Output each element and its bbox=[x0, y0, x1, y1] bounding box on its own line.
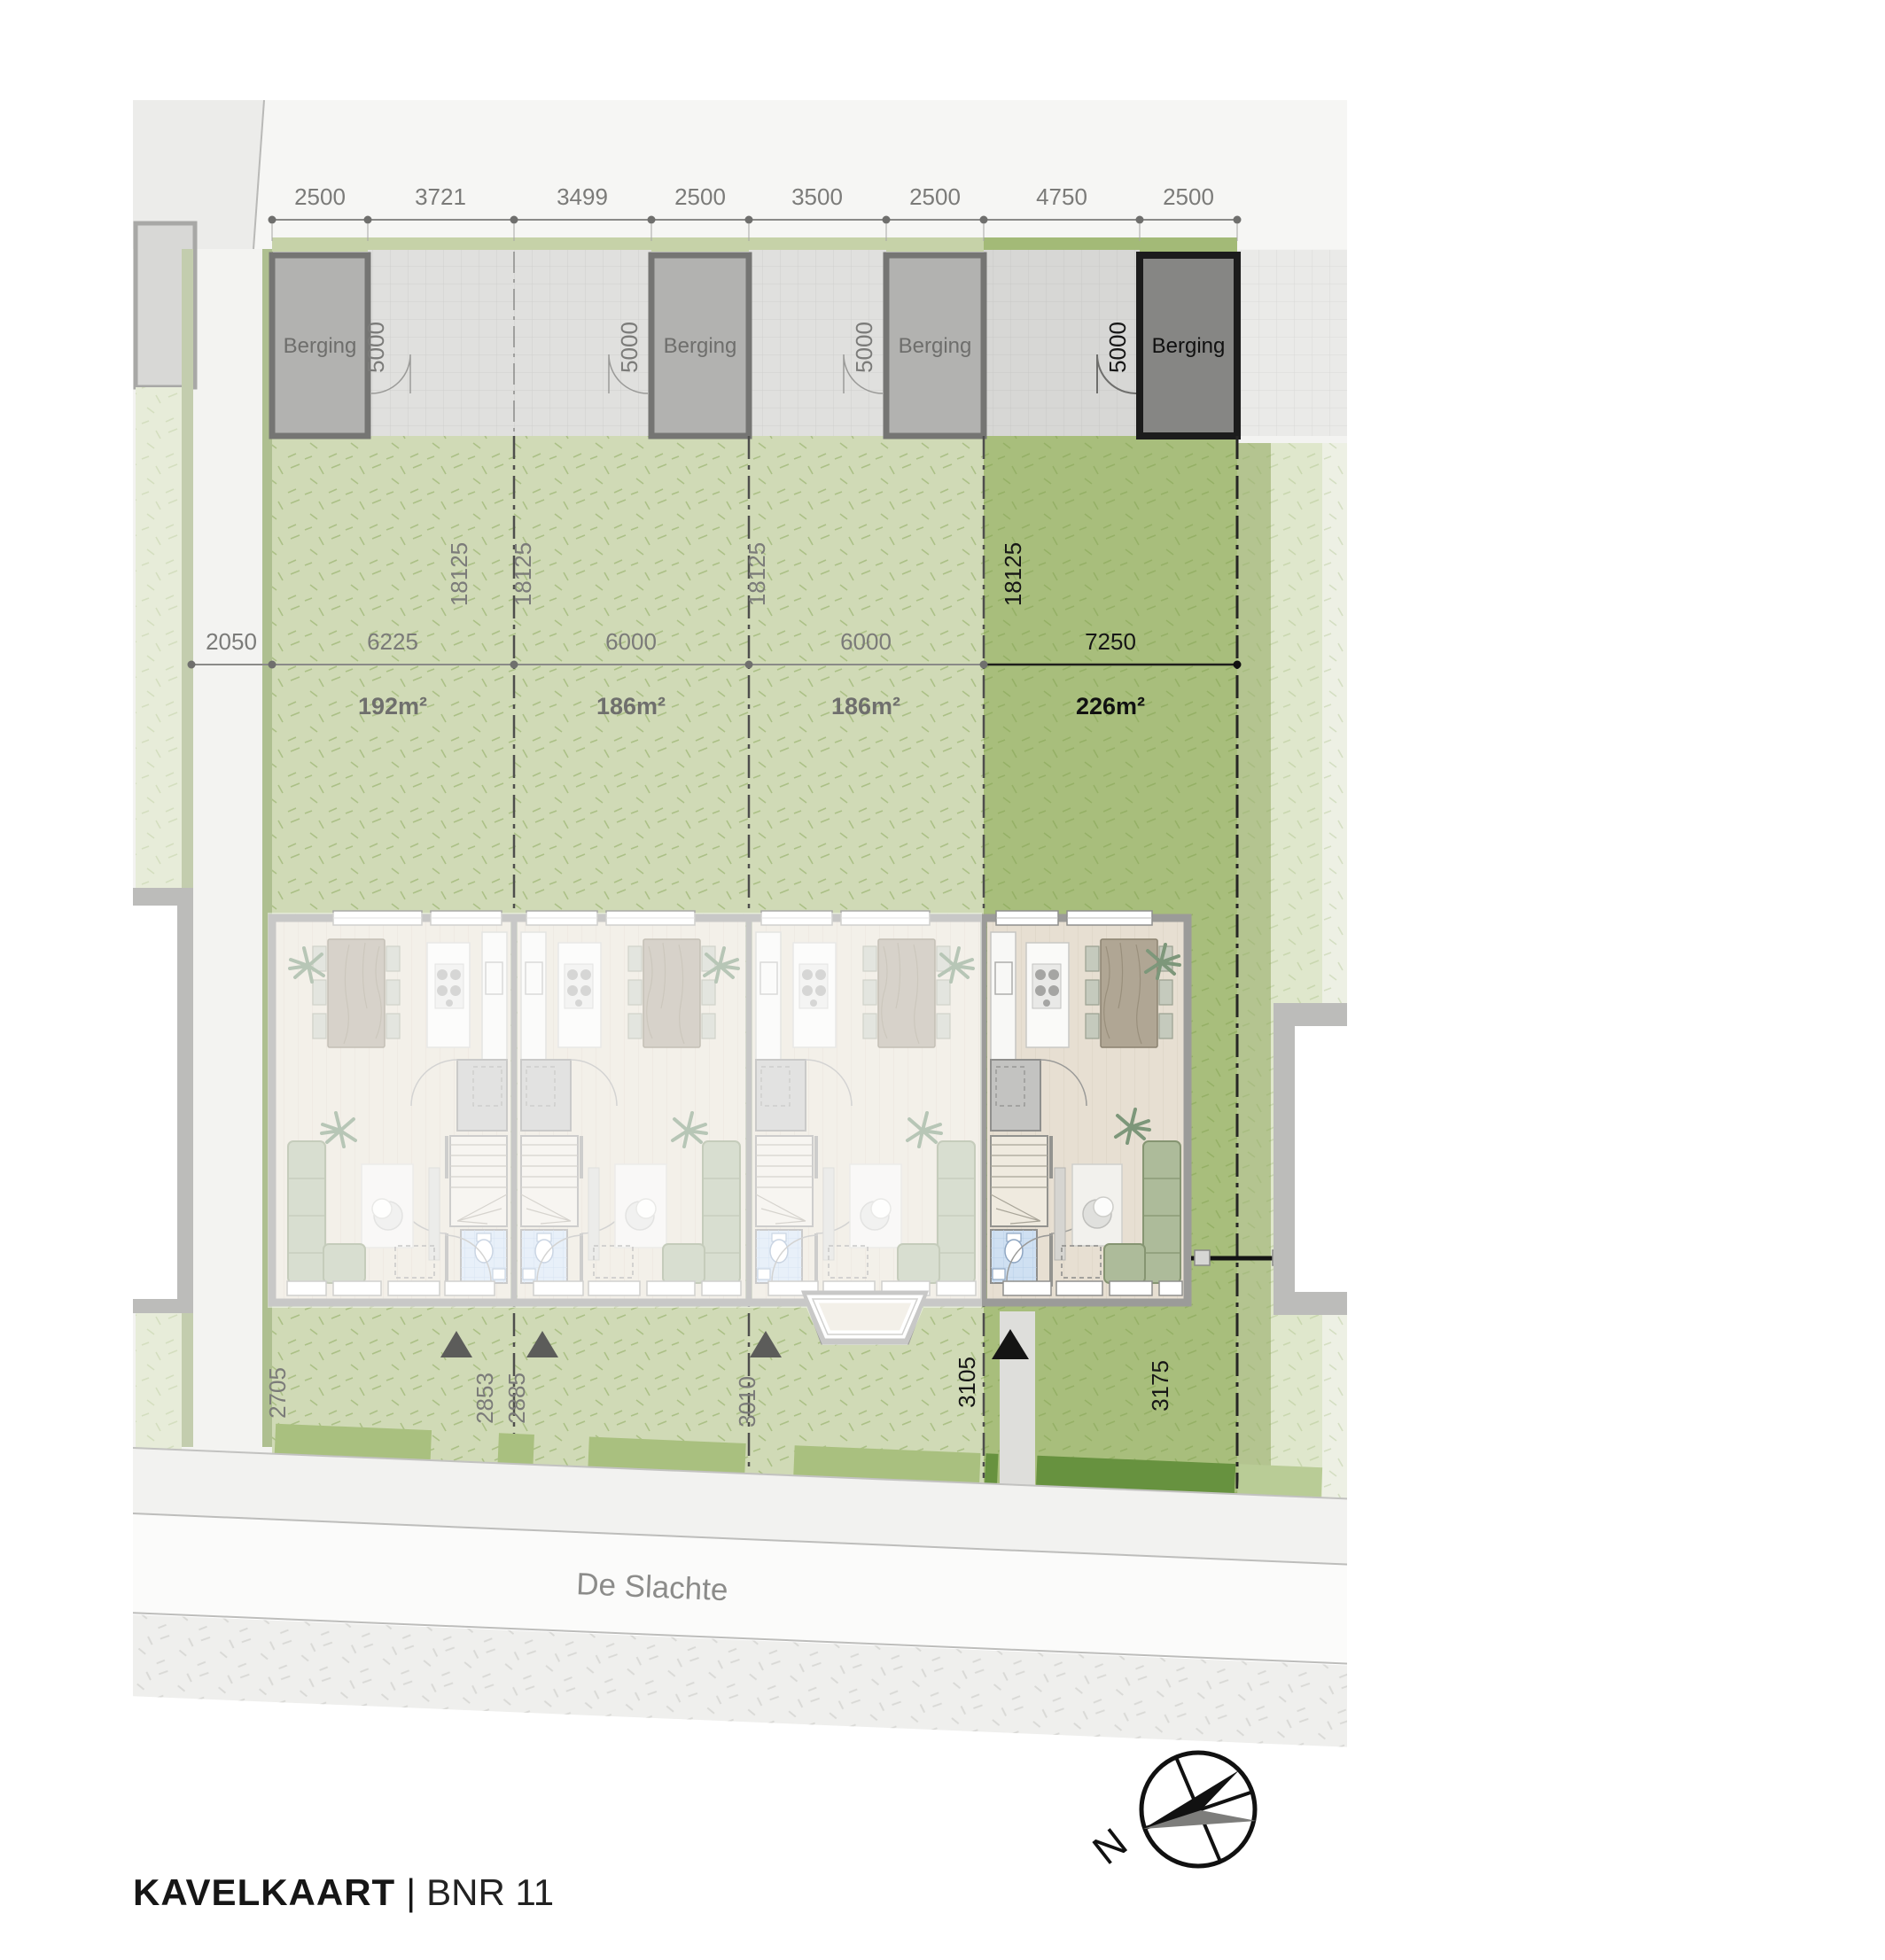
front-dim-5: 3175 bbox=[1147, 1360, 1173, 1412]
neighbor-building-right bbox=[1274, 1003, 1347, 1315]
plot3-depth: 18125 bbox=[744, 542, 770, 606]
plot3-area: 186m² bbox=[831, 693, 900, 719]
berging-depth-1: 5000 bbox=[362, 322, 389, 373]
path-width-label: 2050 bbox=[206, 628, 257, 655]
berging-depth-4: 5000 bbox=[1104, 322, 1131, 373]
plot3-width: 6000 bbox=[840, 628, 892, 655]
front-dim-0: 2705 bbox=[264, 1367, 291, 1419]
plot1-width: 6225 bbox=[367, 628, 418, 655]
dim-top-0: 2500 bbox=[294, 183, 346, 210]
plot2-width: 6000 bbox=[605, 628, 657, 655]
berging-label-1: Berging bbox=[284, 334, 357, 358]
dim-top-4: 3500 bbox=[791, 183, 843, 210]
berging-label-2: Berging bbox=[664, 334, 737, 358]
plot1-area: 192m² bbox=[358, 693, 427, 719]
dim-top-7: 2500 bbox=[1163, 183, 1214, 210]
house-row bbox=[268, 911, 1188, 1345]
neighbor-building-left bbox=[133, 888, 193, 1313]
plot2-area: 186m² bbox=[596, 693, 666, 719]
plot4-width: 7250 bbox=[1085, 628, 1136, 655]
plot4-area: 226m² bbox=[1076, 693, 1145, 719]
front-dim-4: 3105 bbox=[954, 1357, 980, 1408]
plot1-depth: 18125 bbox=[446, 542, 472, 606]
plot-number: BNR 11 bbox=[426, 1871, 554, 1914]
plot4-depth: 18125 bbox=[1000, 542, 1026, 606]
berging-label-4: Berging bbox=[1152, 334, 1226, 358]
berging-depth-2: 5000 bbox=[616, 322, 643, 373]
kavelkaart-page: Berging Berging Berging Berging 5000 500… bbox=[0, 0, 1885, 1960]
dim-top-2: 3499 bbox=[557, 183, 608, 210]
site-plan: Berging Berging Berging Berging 5000 500… bbox=[0, 0, 1885, 1960]
dim-top-3: 2500 bbox=[674, 183, 726, 210]
title-separator: | bbox=[406, 1871, 416, 1914]
north-label: N bbox=[1084, 1819, 1135, 1873]
berging-depth-3: 5000 bbox=[851, 322, 877, 373]
title-block: KAVELKAART | BNR 11 bbox=[133, 1871, 554, 1914]
page-title: KAVELKAART bbox=[133, 1871, 395, 1914]
dim-top-5: 2500 bbox=[909, 183, 961, 210]
front-dim-1: 2853 bbox=[471, 1373, 498, 1424]
front-dim-3: 3010 bbox=[734, 1376, 760, 1427]
plot2-depth: 18125 bbox=[510, 542, 536, 606]
dim-top-6: 4750 bbox=[1036, 183, 1087, 210]
berging-label-3: Berging bbox=[899, 334, 972, 358]
dim-top-1: 3721 bbox=[415, 183, 466, 210]
street-label: De Slachte bbox=[575, 1567, 728, 1607]
street-zone: De Slachte bbox=[122, 1418, 1365, 1747]
front-dim-2: 2885 bbox=[503, 1373, 530, 1424]
compass-rose: N bbox=[1084, 1753, 1257, 1873]
